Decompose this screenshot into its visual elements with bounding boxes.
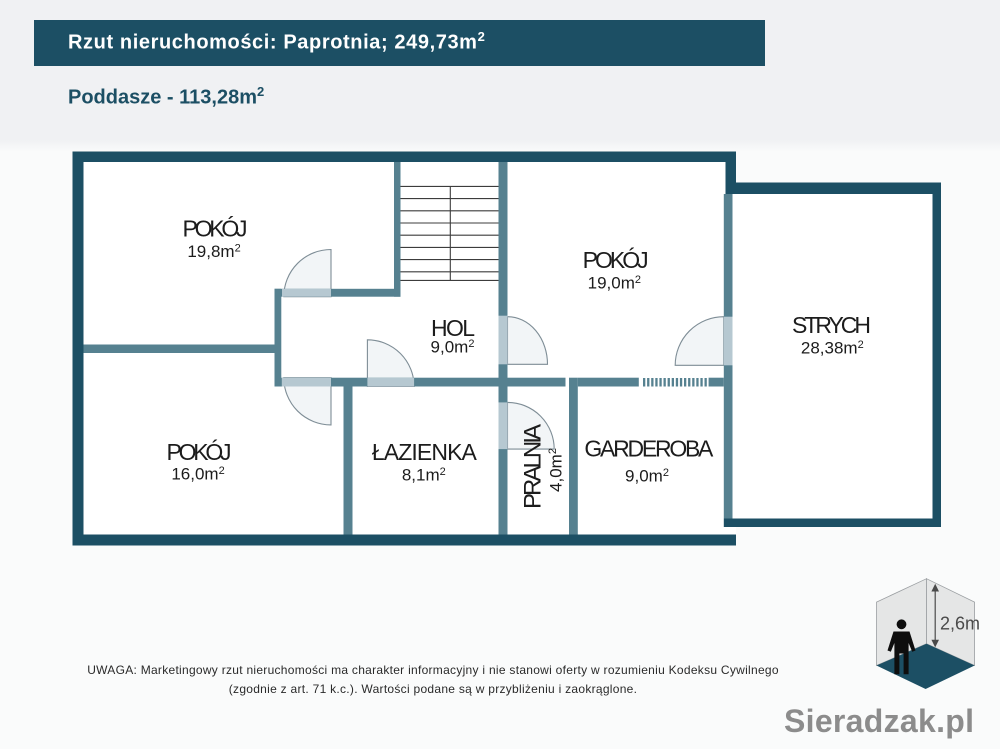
svg-text:9,0m2: 9,0m2 [625, 467, 669, 486]
svg-text:8,1m2: 8,1m2 [402, 466, 446, 485]
svg-text:GARDEROBA: GARDEROBA [584, 435, 714, 461]
svg-text:PRALNIA: PRALNIA [520, 424, 547, 509]
svg-text:POKÓJ: POKÓJ [583, 247, 649, 273]
svg-text:POKÓJ: POKÓJ [167, 439, 232, 465]
svg-text:STRYCH: STRYCH [792, 312, 871, 338]
svg-text:2,6m: 2,6m [940, 614, 980, 634]
svg-text:POKÓJ: POKÓJ [183, 216, 248, 242]
svg-text:9,0m2: 9,0m2 [431, 338, 475, 357]
svg-text:19,8m2: 19,8m2 [187, 242, 240, 261]
svg-text:16,0m2: 16,0m2 [171, 465, 224, 484]
svg-text:28,38m2: 28,38m2 [801, 338, 864, 357]
svg-text:ŁAZIENKA: ŁAZIENKA [372, 439, 478, 465]
svg-text:4,0m2: 4,0m2 [547, 448, 566, 492]
svg-text:19,0m2: 19,0m2 [588, 274, 641, 293]
